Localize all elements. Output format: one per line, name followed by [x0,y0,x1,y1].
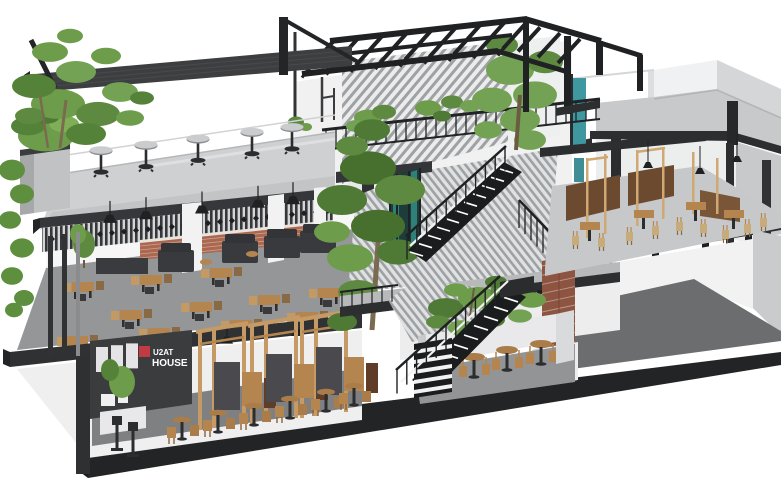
svg-text:HOUSE: HOUSE [152,358,188,369]
svg-text:U2AT: U2AT [153,348,173,357]
